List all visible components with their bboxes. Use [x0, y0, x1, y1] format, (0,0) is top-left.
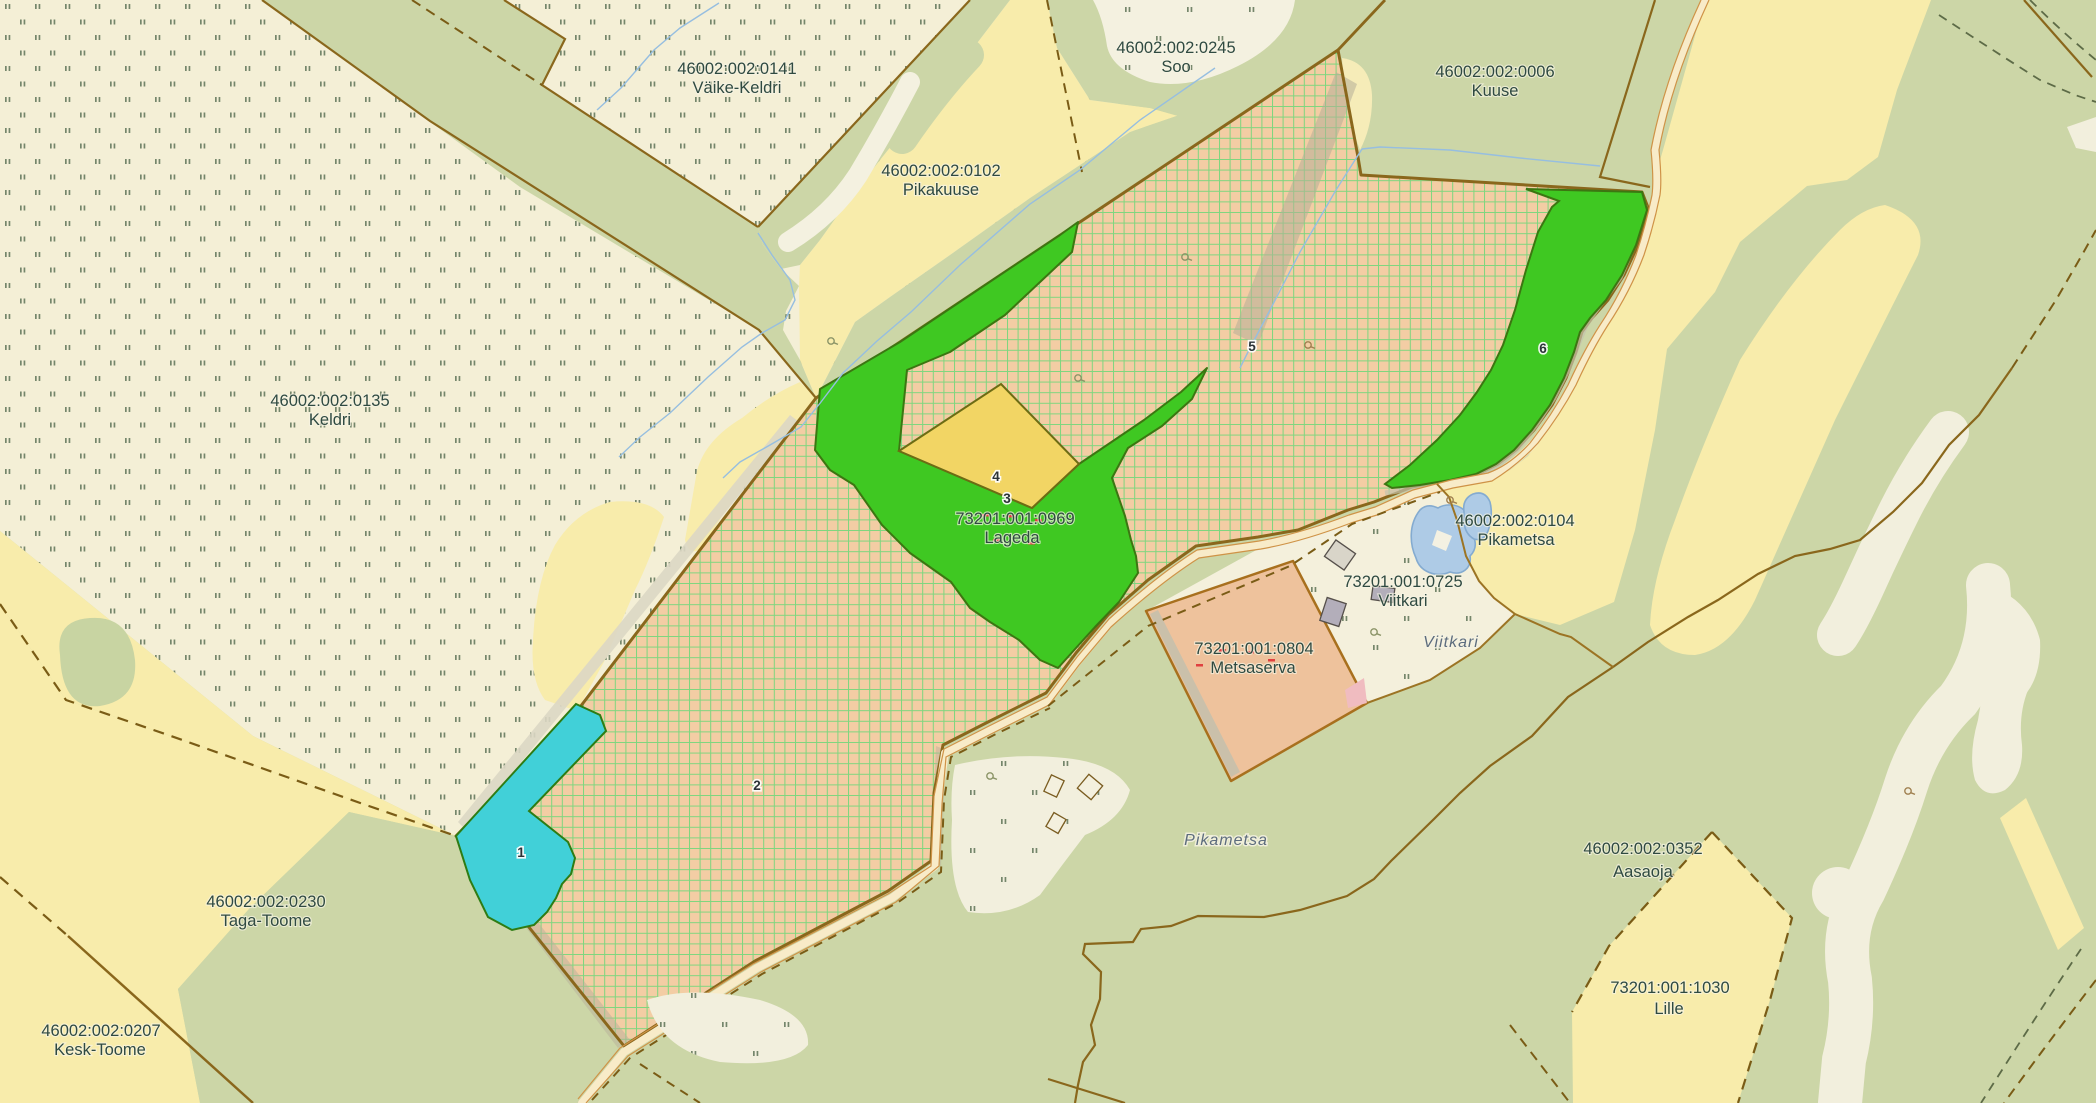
svg-text:2: 2	[753, 778, 761, 793]
svg-text:Lille: Lille	[1654, 1000, 1683, 1018]
svg-text:6: 6	[1539, 341, 1547, 356]
svg-text:46002:002:0207: 46002:002:0207	[41, 1022, 160, 1040]
svg-text:46002:002:0135: 46002:002:0135	[270, 392, 389, 410]
svg-text:46002:002:0245: 46002:002:0245	[1116, 39, 1235, 57]
svg-text:73201:001:1030: 73201:001:1030	[1610, 979, 1729, 997]
svg-text:1: 1	[517, 845, 525, 860]
svg-text:46002:002:0352: 46002:002:0352	[1583, 840, 1702, 858]
svg-text:46002:002:0141: 46002:002:0141	[677, 60, 796, 78]
svg-text:Viitkari: Viitkari	[1423, 634, 1479, 651]
svg-text:73201:001:0725: 73201:001:0725	[1343, 573, 1462, 591]
svg-text:Kesk-Toome: Kesk-Toome	[54, 1041, 146, 1059]
svg-text:5: 5	[1248, 339, 1256, 354]
svg-text:Pikametsa: Pikametsa	[1184, 832, 1268, 849]
svg-text:Soo: Soo	[1161, 58, 1190, 76]
svg-text:Taga-Toome: Taga-Toome	[221, 912, 312, 930]
svg-text:46002:002:0006: 46002:002:0006	[1435, 63, 1554, 81]
svg-text:Pikakuuse: Pikakuuse	[903, 181, 979, 199]
svg-text:Keldri: Keldri	[309, 411, 351, 429]
svg-text:46002:002:0102: 46002:002:0102	[881, 162, 1000, 180]
svg-text:Aasaoja: Aasaoja	[1613, 863, 1673, 881]
svg-text:Pikametsa: Pikametsa	[1477, 531, 1555, 549]
svg-text:3: 3	[1003, 491, 1011, 506]
svg-text:73201:001:0804: 73201:001:0804	[1194, 640, 1313, 658]
svg-text:Lageda: Lageda	[984, 529, 1040, 547]
svg-text:Kuuse: Kuuse	[1472, 82, 1519, 100]
svg-text:46002:002:0230: 46002:002:0230	[206, 893, 325, 911]
svg-text:Viitkari: Viitkari	[1378, 592, 1427, 610]
svg-text:Väike-Keldri: Väike-Keldri	[693, 79, 782, 97]
svg-text:Metsaserva: Metsaserva	[1210, 659, 1296, 677]
svg-text:4: 4	[992, 469, 1000, 484]
svg-text:73201:001:0969: 73201:001:0969	[955, 510, 1074, 528]
svg-text:46002:002:0104: 46002:002:0104	[1455, 512, 1574, 530]
